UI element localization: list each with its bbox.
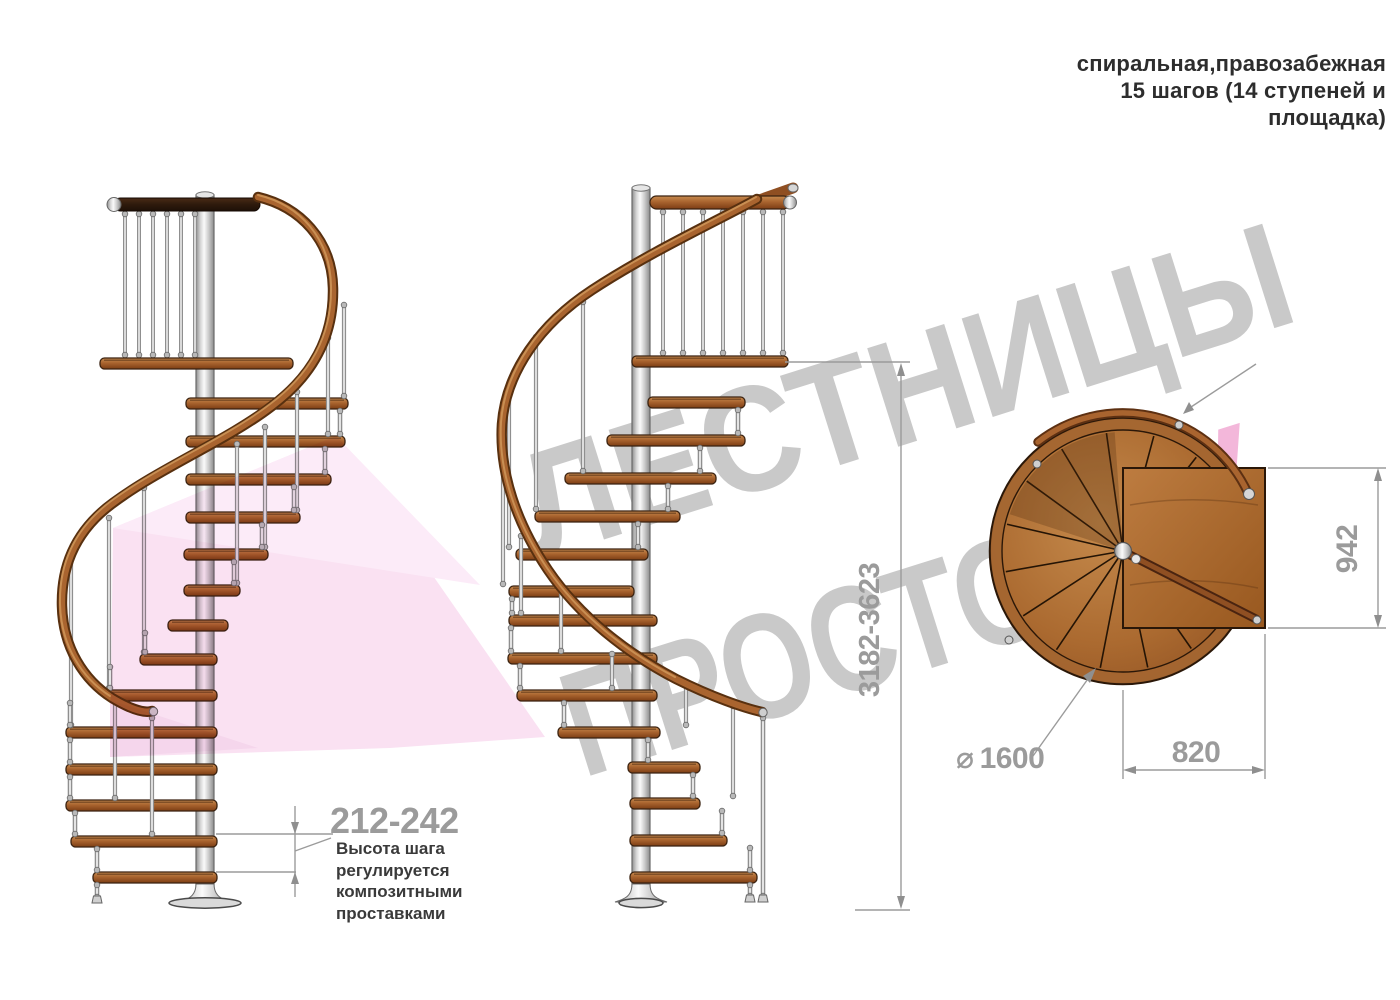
baluster-joint bbox=[683, 722, 689, 728]
plan-view bbox=[990, 413, 1265, 684]
baluster-joint bbox=[94, 867, 100, 873]
baluster-joint bbox=[122, 211, 128, 217]
middle-base-plate bbox=[619, 898, 663, 907]
baluster-joint bbox=[337, 431, 343, 437]
middle-rail-elbow-cap bbox=[788, 184, 798, 192]
baluster-joint bbox=[509, 610, 515, 616]
baluster-joint bbox=[94, 846, 100, 852]
baluster-joint bbox=[106, 515, 112, 521]
baluster-joint bbox=[561, 700, 567, 706]
baluster-joint bbox=[719, 808, 725, 814]
drawing-title: спиральная,правозабежная 15 шагов (14 ст… bbox=[1077, 50, 1386, 131]
plan-rail-ferrule bbox=[1253, 616, 1261, 624]
title-line: площадка) bbox=[1077, 104, 1386, 131]
middle-center-pole bbox=[632, 188, 650, 898]
baluster-joint bbox=[760, 350, 766, 356]
baluster-joint bbox=[150, 352, 156, 358]
baluster-joint bbox=[780, 209, 786, 215]
drawing-page: ЛЕСТНИЦЫ ПРОСТО .ру bbox=[0, 0, 1400, 1000]
baluster-joint bbox=[680, 350, 686, 356]
middle-pole-cap bbox=[632, 185, 650, 191]
plan-diameter-label: ⌀1600 bbox=[956, 742, 1044, 775]
baluster-joint bbox=[112, 795, 118, 801]
baluster-joint bbox=[67, 737, 73, 743]
baluster-joint bbox=[517, 663, 523, 669]
baluster-joint bbox=[730, 793, 736, 799]
baluster-joint bbox=[747, 845, 753, 851]
title-line: спиральная,правозабежная bbox=[1077, 50, 1386, 77]
baluster-joint bbox=[645, 737, 651, 743]
total-height-label: 3182-3623 bbox=[854, 563, 886, 698]
baluster-joint bbox=[635, 521, 641, 527]
baluster-joint bbox=[697, 468, 703, 474]
title-line: 15 шагов (14 ступеней и bbox=[1077, 77, 1386, 104]
plan-baluster-dot bbox=[1175, 421, 1183, 429]
baluster-joint bbox=[740, 350, 746, 356]
baluster-joint bbox=[509, 596, 515, 602]
baluster-joint bbox=[561, 722, 567, 728]
baluster-joint bbox=[665, 483, 671, 489]
baluster-joint bbox=[94, 882, 100, 888]
baluster-joint bbox=[67, 795, 73, 801]
plan-width-label: 820 bbox=[1172, 736, 1221, 769]
baluster-joint bbox=[67, 722, 73, 728]
baluster-foot bbox=[758, 895, 768, 902]
baluster-joint bbox=[735, 430, 741, 436]
baluster-joint bbox=[234, 441, 240, 447]
baluster-joint bbox=[192, 211, 198, 217]
baluster-joint bbox=[325, 431, 331, 437]
baluster-joint bbox=[192, 352, 198, 358]
baluster-joint bbox=[690, 793, 696, 799]
pink-arrow-watermark bbox=[110, 436, 545, 757]
plan-arc-end-ball bbox=[1244, 489, 1255, 500]
baluster-joint bbox=[164, 211, 170, 217]
plan-center-knob bbox=[1132, 555, 1141, 564]
baluster-joint bbox=[517, 685, 523, 691]
baluster-joint bbox=[136, 352, 142, 358]
left-base-plate bbox=[169, 898, 241, 908]
plan-baluster-dot bbox=[1005, 636, 1013, 644]
baluster-joint bbox=[72, 831, 78, 837]
baluster-joint bbox=[136, 211, 142, 217]
middle-handrail-ferrule bbox=[759, 708, 767, 716]
baluster-joint bbox=[609, 685, 615, 691]
baluster-joint bbox=[164, 352, 170, 358]
left-rail-end-ball bbox=[107, 198, 121, 212]
plan-depth-label: 942 bbox=[1331, 525, 1364, 574]
baluster-joint bbox=[719, 830, 725, 836]
baluster-joint bbox=[645, 757, 651, 763]
middle-platform-top-rail bbox=[650, 196, 790, 209]
baluster-joint bbox=[508, 648, 514, 654]
baluster-joint bbox=[341, 302, 347, 308]
baluster-joint bbox=[700, 209, 706, 215]
baluster-joint bbox=[747, 882, 753, 888]
left-platform-top-rail bbox=[114, 198, 260, 211]
step-height-label: 212-242 bbox=[330, 800, 459, 841]
baluster-joint bbox=[690, 772, 696, 778]
baluster-joint bbox=[149, 831, 155, 837]
baluster-joint bbox=[747, 867, 753, 873]
baluster-joint bbox=[178, 352, 184, 358]
baluster-joint bbox=[580, 468, 586, 474]
baluster-joint bbox=[660, 209, 666, 215]
baluster-joint bbox=[178, 211, 184, 217]
baluster-joint bbox=[700, 350, 706, 356]
left-pole-cap bbox=[196, 192, 214, 198]
plan-center-pole bbox=[1115, 543, 1132, 560]
baluster-joint bbox=[508, 625, 514, 631]
baluster-joint bbox=[67, 774, 73, 780]
baluster-joint bbox=[665, 506, 671, 512]
baluster-joint bbox=[735, 407, 741, 413]
middle-rail-end-ball bbox=[784, 196, 797, 209]
baluster-joint bbox=[262, 424, 268, 430]
staircase-drawing: ЛЕСТНИЦЫ ПРОСТО .ру bbox=[0, 0, 1400, 1000]
baluster-joint bbox=[500, 581, 506, 587]
plan-baluster-dot bbox=[1033, 460, 1041, 468]
baluster-joint bbox=[558, 648, 564, 654]
baluster-joint bbox=[122, 352, 128, 358]
baluster-joint bbox=[780, 350, 786, 356]
baluster-joint bbox=[635, 544, 641, 550]
baluster-joint bbox=[680, 209, 686, 215]
baluster-joint bbox=[506, 544, 512, 550]
baluster-joint bbox=[67, 759, 73, 765]
baluster-joint bbox=[720, 350, 726, 356]
baluster-joint bbox=[518, 610, 524, 616]
baluster-joint bbox=[760, 209, 766, 215]
baluster-foot bbox=[745, 895, 755, 902]
baluster-joint bbox=[150, 211, 156, 217]
baluster-joint bbox=[697, 445, 703, 451]
baluster-foot bbox=[92, 896, 102, 903]
baluster-joint bbox=[337, 408, 343, 414]
baluster-joint bbox=[67, 700, 73, 706]
step-height-note: Высота шага регулируется композитными пр… bbox=[336, 838, 506, 924]
baluster-joint bbox=[533, 506, 539, 512]
baluster-joint bbox=[341, 393, 347, 399]
baluster-joint bbox=[72, 810, 78, 816]
baluster-joint bbox=[609, 651, 615, 657]
baluster-joint bbox=[660, 350, 666, 356]
